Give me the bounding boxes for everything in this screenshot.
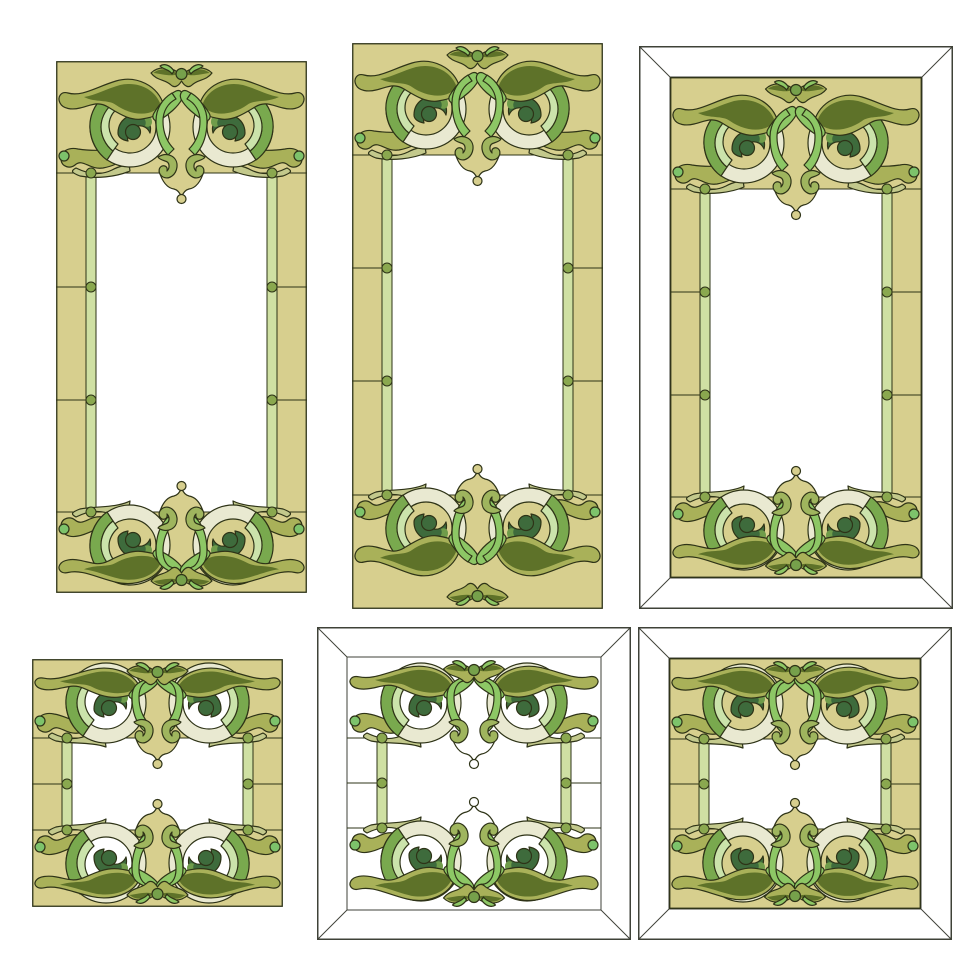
center-swirl-head (739, 850, 754, 865)
center-swirl-head (740, 141, 755, 156)
liner-strip-right (267, 173, 277, 512)
shield-nub (177, 482, 186, 491)
center-swirl-head (838, 141, 853, 156)
center-swirl-head (102, 701, 117, 716)
bud-dot (791, 560, 802, 571)
frame-body (56, 62, 307, 593)
center-swirl-head (837, 702, 852, 717)
shield-nub (792, 211, 801, 220)
center-swirl-head (199, 851, 214, 866)
frame-tall-plain-middle (352, 43, 603, 609)
wave-tip-bulb (270, 716, 280, 726)
shield-nub (153, 760, 162, 769)
joint-dot (882, 184, 892, 194)
center-swirl-head (417, 701, 432, 716)
wave-tip-bulb (350, 840, 360, 850)
wave-tip-bulb (59, 151, 69, 161)
shield-nub (473, 465, 482, 474)
frame-opening (710, 189, 882, 497)
joint-dot (267, 507, 277, 517)
joint-dot (563, 490, 573, 500)
center-swirl-head (199, 701, 214, 716)
center-swirl-head (223, 125, 238, 140)
wave-tip-bulb (350, 716, 360, 726)
joint-dot (700, 492, 710, 502)
center-swirl-head (740, 518, 755, 533)
center-swirl-head (837, 850, 852, 865)
center-swirl-head (223, 533, 238, 548)
wave-tip-bulb (588, 716, 598, 726)
joint-dot (382, 150, 392, 160)
bud-dot (472, 51, 483, 62)
wave-tip-bulb (355, 133, 365, 143)
joint-dot (563, 376, 573, 386)
joint-dot (881, 734, 891, 744)
joint-dot (561, 733, 571, 743)
bud-dot (152, 889, 163, 900)
joint-dot (881, 779, 891, 789)
joint-dot (700, 390, 710, 400)
joint-dot (700, 184, 710, 194)
center-swirl-head (126, 533, 141, 548)
liner-strip-left (382, 155, 392, 495)
joint-dot (377, 778, 387, 788)
joint-dot (882, 287, 892, 297)
joint-dot (382, 263, 392, 273)
frame-square-bevel-right (638, 627, 952, 940)
joint-dot (699, 779, 709, 789)
wave-tip-bulb (35, 842, 45, 852)
joint-dot (86, 168, 96, 178)
wave-tip-bulb (59, 524, 69, 534)
bud-dot (469, 665, 480, 676)
joint-dot (563, 263, 573, 273)
bud-dot (791, 85, 802, 96)
center-swirl-head (422, 516, 437, 531)
center-swirl-head (519, 107, 534, 122)
joint-dot (561, 778, 571, 788)
center-swirl-head (519, 516, 534, 531)
frame-opening (96, 173, 267, 512)
wave-tip-bulb (673, 167, 683, 177)
frame-body (670, 78, 922, 578)
center-swirl-head (417, 849, 432, 864)
liner-strip-left (700, 189, 710, 497)
wave-tip-bulb (590, 133, 600, 143)
bud-dot (176, 575, 187, 586)
shield-nub (470, 760, 479, 769)
joint-dot (267, 395, 277, 405)
frame-square-plain-left (32, 659, 283, 907)
liner-strip-right (882, 189, 892, 497)
joint-dot (267, 168, 277, 178)
joint-dot (561, 823, 571, 833)
joint-dot (377, 823, 387, 833)
joint-dot (377, 733, 387, 743)
frame-body (669, 659, 921, 909)
bud-dot (790, 891, 801, 902)
bud-dot (469, 892, 480, 903)
wave-tip-bulb (294, 524, 304, 534)
joint-dot (882, 390, 892, 400)
frame-tall-bevel-right (639, 46, 953, 609)
joint-dot (62, 733, 72, 743)
joint-dot (882, 492, 892, 502)
center-swirl-head (517, 701, 532, 716)
wave-tip-bulb (672, 841, 682, 851)
joint-dot (267, 282, 277, 292)
center-swirl-head (838, 518, 853, 533)
bud-dot (152, 667, 163, 678)
joint-dot (62, 825, 72, 835)
liner-strip-right (563, 155, 573, 495)
bud-dot (790, 666, 801, 677)
wave-tip-bulb (588, 840, 598, 850)
joint-dot (563, 150, 573, 160)
joint-dot (243, 733, 253, 743)
center-swirl-head (126, 125, 141, 140)
bud-dot (472, 591, 483, 602)
joint-dot (699, 824, 709, 834)
joint-dot (86, 507, 96, 517)
center-swirl-head (739, 702, 754, 717)
wave-tip-bulb (909, 509, 919, 519)
frame-opening (392, 155, 563, 495)
liner-strip-left (86, 173, 96, 512)
wave-tip-bulb (908, 841, 918, 851)
frame-square-bevel-middle (317, 627, 631, 940)
shield-nub (473, 177, 482, 186)
wave-tip-bulb (673, 509, 683, 519)
shield-nub (177, 195, 186, 204)
wave-tip-bulb (294, 151, 304, 161)
joint-dot (86, 395, 96, 405)
frame-body (32, 660, 283, 907)
center-swirl-head (517, 849, 532, 864)
wave-tip-bulb (590, 507, 600, 517)
joint-dot (243, 825, 253, 835)
shield-nub (470, 798, 479, 807)
joint-dot (382, 490, 392, 500)
joint-dot (699, 734, 709, 744)
joint-dot (881, 824, 891, 834)
wave-tip-bulb (355, 507, 365, 517)
bud-dot (176, 69, 187, 80)
shield-nub (791, 799, 800, 808)
joint-dot (62, 779, 72, 789)
wave-tip-bulb (270, 842, 280, 852)
wave-tip-bulb (909, 167, 919, 177)
joint-dot (243, 779, 253, 789)
wave-tip-bulb (908, 717, 918, 727)
shield-nub (792, 467, 801, 476)
joint-dot (382, 376, 392, 386)
joint-dot (700, 287, 710, 297)
center-swirl-head (102, 851, 117, 866)
stained-glass-frame-set (0, 0, 980, 980)
center-swirl-head (422, 107, 437, 122)
wave-tip-bulb (35, 716, 45, 726)
shield-nub (153, 800, 162, 809)
shield-nub (791, 761, 800, 770)
frame-tall-plain-left (56, 61, 307, 593)
joint-dot (86, 282, 96, 292)
frame-body (352, 44, 603, 609)
wave-tip-bulb (672, 717, 682, 727)
